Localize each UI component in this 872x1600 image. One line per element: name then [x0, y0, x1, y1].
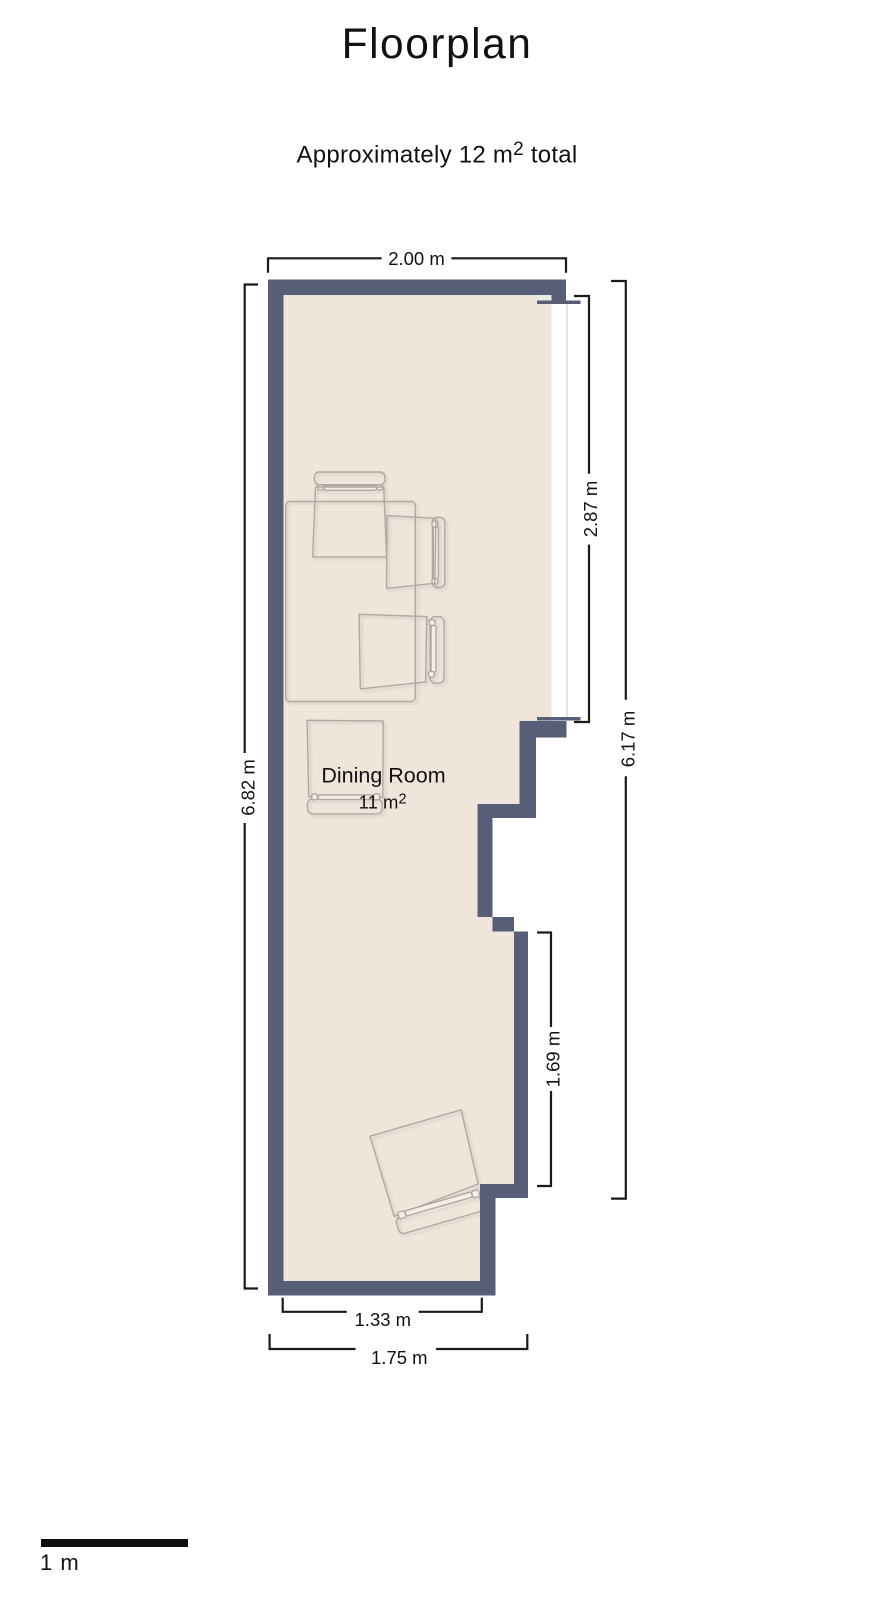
svg-text:1 m: 1 m — [40, 1550, 80, 1575]
svg-text:1.75 m: 1.75 m — [371, 1347, 428, 1368]
svg-text:6.17 m: 6.17 m — [618, 711, 639, 768]
svg-text:2.00 m: 2.00 m — [388, 248, 445, 269]
svg-text:2.87 m: 2.87 m — [580, 481, 601, 538]
svg-text:Approximately 12 m2 total: Approximately 12 m2 total — [297, 139, 578, 169]
svg-text:Floorplan: Floorplan — [342, 21, 533, 68]
svg-text:1.33 m: 1.33 m — [355, 1309, 412, 1330]
svg-text:Dining Room: Dining Room — [321, 764, 445, 788]
svg-text:6.82 m: 6.82 m — [238, 759, 259, 816]
svg-text:1.69 m: 1.69 m — [543, 1031, 564, 1088]
